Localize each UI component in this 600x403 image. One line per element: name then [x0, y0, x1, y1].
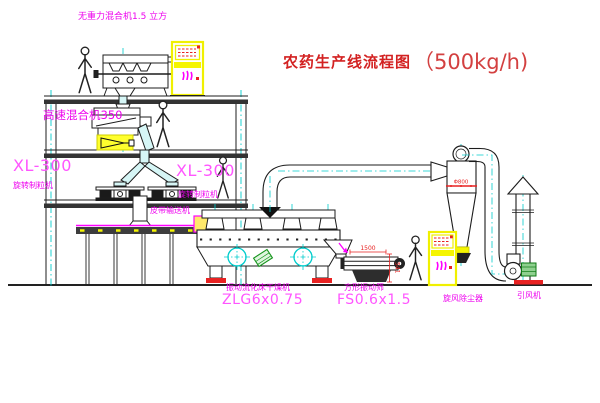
person-figure	[157, 101, 170, 147]
cad-flow-diagram: Φ800	[0, 0, 600, 403]
label-belt-conveyor: 皮带输送机	[150, 207, 190, 215]
label-screen-name: 方形振动筛	[344, 284, 384, 292]
person-figure	[410, 236, 422, 280]
square-screen-drawing: 1500 541	[341, 245, 406, 282]
title-capacity: （500kg/h)	[413, 46, 528, 76]
label-granulator-left-name: 旋转制粒机	[13, 182, 53, 190]
screen-length-dim: 1500	[360, 245, 375, 252]
label-high-speed-mixer: 高速混合机350	[43, 110, 122, 122]
label-granulator-right-model: XL-300	[176, 163, 235, 179]
label-granulator-right-name: 旋转制粒机	[178, 191, 218, 199]
label-dryer-model: ZLG6x0.75	[222, 293, 303, 307]
label-granulator-left-model: XL-300	[13, 158, 72, 174]
control-cabinet-1	[170, 42, 205, 96]
label-cyclone: 旋风除尘器	[443, 295, 483, 303]
person-figure	[79, 47, 92, 93]
exhaust-duct	[263, 165, 448, 212]
title-chinese: 农药生产线流程图	[283, 51, 411, 72]
drawing-title: 农药生产线流程图 （500kg/h)	[283, 46, 528, 76]
control-cabinet-2	[429, 232, 456, 285]
label-dryer-name: 振动流化床干燥机	[226, 284, 290, 292]
cyclone-diameter-dim: Φ800	[454, 180, 469, 186]
label-fan: 引风机	[517, 292, 541, 300]
fluid-bed-dryer-drawing	[197, 204, 352, 283]
screen-height-dim: 541	[394, 262, 401, 274]
label-screen-model: FS0.6x1.5	[337, 293, 411, 307]
fan-drawing	[505, 254, 544, 285]
belt-conveyor-drawing	[76, 216, 211, 285]
label-gravityless-mixer: 无重力混合机1.5 立方	[78, 13, 167, 22]
